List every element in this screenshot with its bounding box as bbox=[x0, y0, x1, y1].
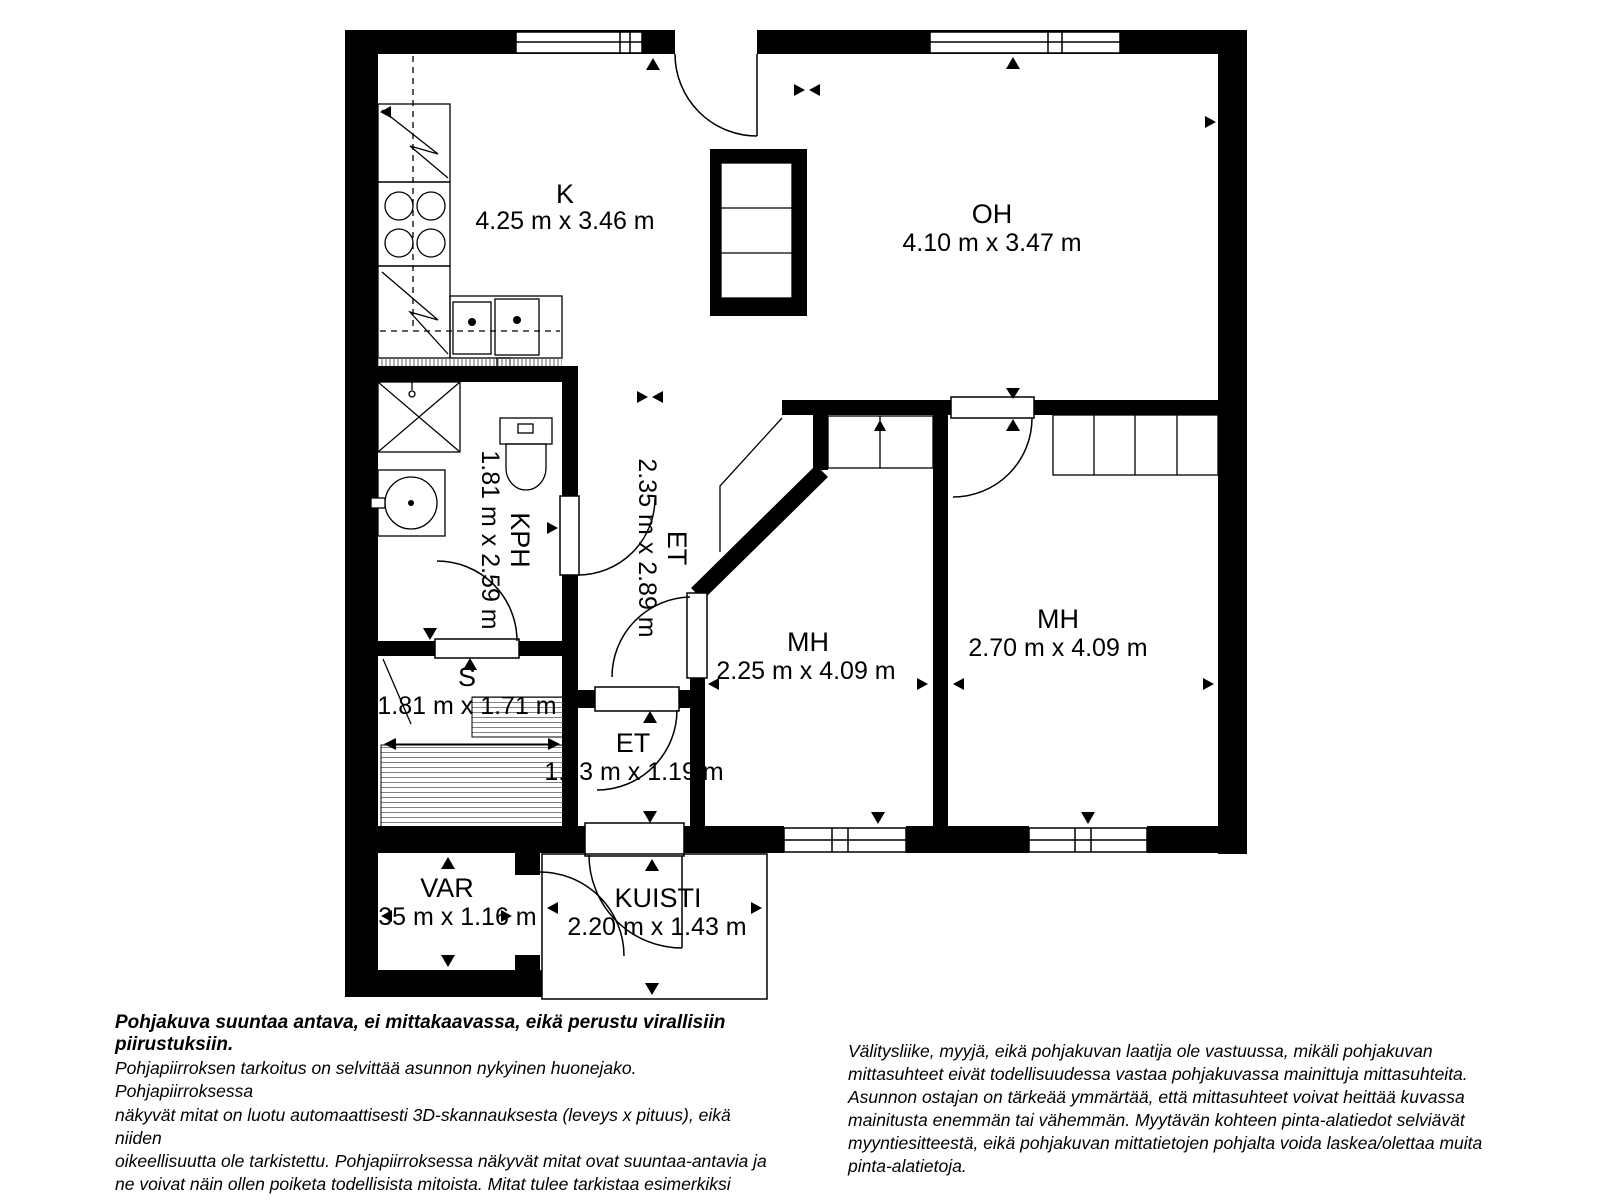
fireplace bbox=[710, 149, 807, 316]
windows bbox=[516, 32, 1147, 852]
appliance-icon bbox=[378, 266, 450, 358]
room-label-sauna: S 1.81 m x 1.71 m bbox=[377, 662, 556, 720]
entrance-door bbox=[675, 30, 757, 136]
room-label-bedroom-left: MH 2.25 m x 4.09 m bbox=[716, 627, 895, 685]
svg-text:S: S bbox=[458, 662, 476, 692]
svg-text:MH: MH bbox=[787, 627, 829, 657]
svg-text:MH: MH bbox=[1037, 604, 1079, 634]
svg-text:1.81 m x 2.59 m: 1.81 m x 2.59 m bbox=[476, 450, 504, 629]
svg-text:4.25 m x 3.46 m: 4.25 m x 3.46 m bbox=[475, 207, 654, 235]
room-label-storage: VAR 1.35 m x 1.16 m bbox=[357, 873, 536, 931]
bedroom-right-door bbox=[951, 397, 1034, 497]
svg-text:1.13 m x 1.19 m: 1.13 m x 1.19 m bbox=[544, 758, 723, 786]
svg-text:VAR: VAR bbox=[420, 873, 474, 903]
svg-text:KUISTI: KUISTI bbox=[614, 883, 701, 913]
svg-text:K: K bbox=[556, 179, 574, 209]
svg-text:KPH: KPH bbox=[505, 512, 535, 568]
svg-text:2.70 m x 4.09 m: 2.70 m x 4.09 m bbox=[968, 634, 1147, 662]
washer-icon bbox=[378, 382, 460, 452]
livingroom-window bbox=[930, 32, 1120, 53]
bedroom-right-window bbox=[1029, 828, 1147, 852]
note-paragraph-right: Välitysliike, myyjä, eikä pohjakuvan laa… bbox=[848, 1040, 1508, 1179]
sink-icon bbox=[371, 470, 445, 536]
svg-text:2.20 m x 1.43 m: 2.20 m x 1.43 m bbox=[567, 913, 746, 941]
note-paragraph-left: Pohjapiirroksen tarkoitus on selvittää a… bbox=[115, 1057, 775, 1200]
room-label-kitchen: K 4.25 m x 3.46 m bbox=[475, 179, 654, 235]
svg-text:2.35 m x 2.89 m: 2.35 m x 2.89 m bbox=[633, 458, 661, 637]
room-label-bathroom: KPH 1.81 m x 2.59 m bbox=[476, 450, 535, 629]
room-label-bedroom-right: MH 2.70 m x 4.09 m bbox=[968, 604, 1147, 662]
wardrobes bbox=[720, 415, 1218, 552]
toilet-icon bbox=[500, 418, 552, 490]
svg-text:2.25 m x 4.09 m: 2.25 m x 4.09 m bbox=[716, 657, 895, 685]
svg-text:ET: ET bbox=[662, 531, 692, 566]
bedroom-left-window bbox=[784, 828, 906, 852]
room-label-livingroom: OH 4.10 m x 3.47 m bbox=[902, 199, 1081, 257]
kitchen-window bbox=[516, 32, 642, 53]
svg-text:4.10 m x 3.47 m: 4.10 m x 3.47 m bbox=[902, 229, 1081, 257]
svg-text:OH: OH bbox=[972, 199, 1013, 229]
svg-text:1.81 m x 1.71 m: 1.81 m x 1.71 m bbox=[377, 692, 556, 720]
wardrobe-bedroom-right bbox=[1053, 415, 1218, 475]
stove-icon bbox=[378, 182, 450, 266]
counter-edge-hatch bbox=[378, 358, 562, 366]
floor-plan-page: K 4.25 m x 3.46 m OH 4.10 m x 3.47 m KPH… bbox=[0, 0, 1600, 1200]
disclaimer-text: Pohjakuva suuntaa antava, ei mittakaavas… bbox=[115, 1012, 835, 1056]
svg-text:1.35 m x 1.16 m: 1.35 m x 1.16 m bbox=[357, 903, 536, 931]
room-label-hall: ET 2.35 m x 2.89 m bbox=[633, 458, 692, 637]
svg-text:ET: ET bbox=[616, 728, 651, 758]
